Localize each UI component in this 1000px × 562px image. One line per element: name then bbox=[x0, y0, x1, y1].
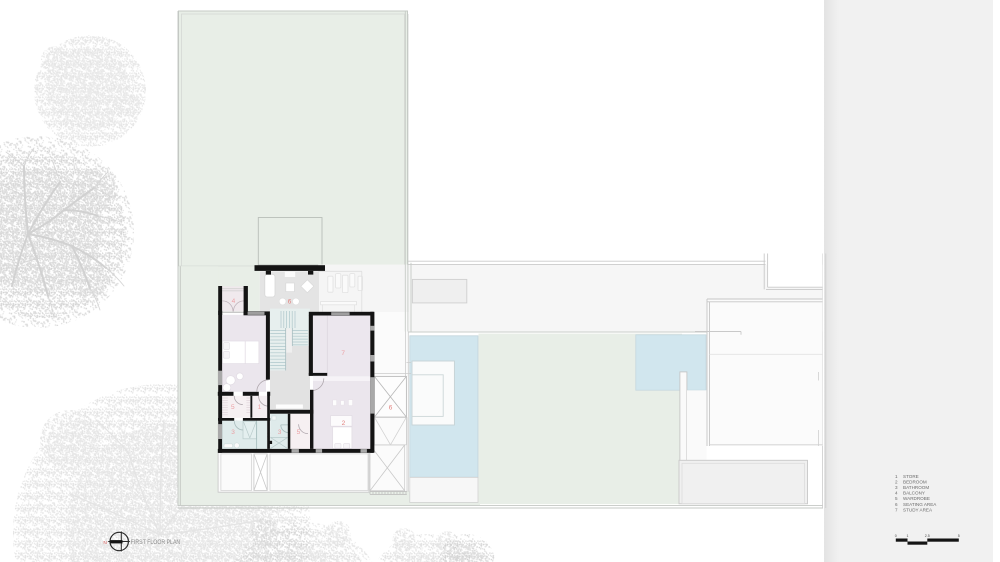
svg-text:WARDROBE: WARDROBE bbox=[903, 496, 930, 501]
svg-text:5: 5 bbox=[958, 534, 960, 538]
svg-text:4: 4 bbox=[232, 298, 236, 305]
svg-text:3: 3 bbox=[278, 429, 282, 436]
svg-text:6: 6 bbox=[895, 502, 898, 507]
svg-text:2: 2 bbox=[895, 479, 898, 484]
svg-text:6: 6 bbox=[389, 405, 393, 412]
svg-text:3: 3 bbox=[895, 485, 898, 490]
svg-text:BEDROOM: BEDROOM bbox=[903, 479, 927, 484]
svg-text:FIRST FLOOR PLAN: FIRST FLOOR PLAN bbox=[131, 540, 180, 546]
svg-text:1: 1 bbox=[907, 534, 909, 538]
svg-text:3: 3 bbox=[231, 429, 235, 436]
svg-text:SEATING AREA: SEATING AREA bbox=[903, 502, 937, 507]
svg-text:5: 5 bbox=[231, 404, 235, 411]
svg-text:BATHROOM: BATHROOM bbox=[903, 485, 929, 490]
svg-text:5: 5 bbox=[297, 429, 301, 436]
svg-text:1: 1 bbox=[258, 404, 262, 411]
svg-text:2: 2 bbox=[342, 420, 346, 427]
svg-text:N: N bbox=[103, 540, 107, 546]
svg-text:0: 0 bbox=[895, 534, 897, 538]
svg-text:7: 7 bbox=[895, 507, 898, 512]
svg-text:2.5: 2.5 bbox=[925, 534, 930, 538]
svg-text:STORE: STORE bbox=[903, 474, 919, 479]
svg-text:4: 4 bbox=[895, 491, 898, 496]
svg-text:7: 7 bbox=[341, 350, 345, 357]
svg-text:BALCONY: BALCONY bbox=[903, 491, 925, 496]
svg-text:1: 1 bbox=[895, 474, 898, 479]
svg-text:STUDY AREA: STUDY AREA bbox=[903, 507, 933, 512]
svg-text:6: 6 bbox=[288, 299, 292, 306]
svg-text:5: 5 bbox=[895, 496, 898, 501]
